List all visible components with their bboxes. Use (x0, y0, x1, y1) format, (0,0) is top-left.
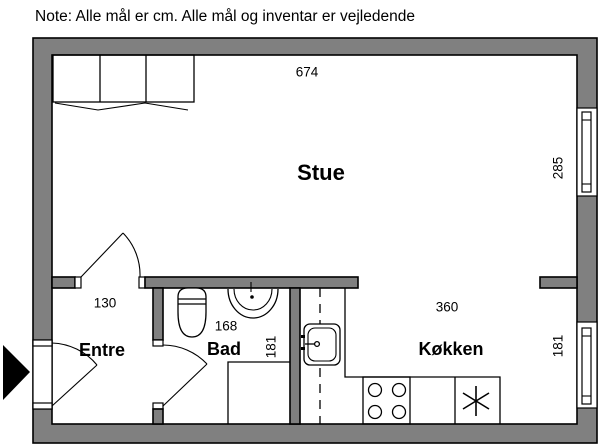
room-label-stue: Stue (297, 162, 345, 184)
floor-plan: Note: Alle mål er cm. Alle mål og invent… (0, 0, 600, 446)
kitchen-sink-icon (301, 324, 340, 365)
dim-kokken-window: 181 (551, 335, 565, 358)
room-label-bad: Bad (207, 340, 241, 358)
entrance-door-opening (33, 340, 52, 409)
dim-entre-door: 130 (94, 296, 117, 310)
room-label-entre: Entre (79, 341, 125, 359)
outer-walls (33, 38, 597, 443)
toilet-icon (178, 288, 206, 337)
entrance-arrow-icon (3, 345, 30, 400)
window-stue-icon (577, 108, 597, 196)
dim-stue-window: 285 (551, 157, 565, 180)
dim-bad-width: 168 (215, 319, 238, 333)
dim-kokken-width: 360 (436, 300, 459, 314)
room-label-kokken: Køkken (418, 340, 483, 358)
dim-stue-width: 674 (296, 65, 319, 79)
dim-bad-depth: 181 (264, 336, 278, 359)
window-kokken-icon (577, 322, 597, 408)
